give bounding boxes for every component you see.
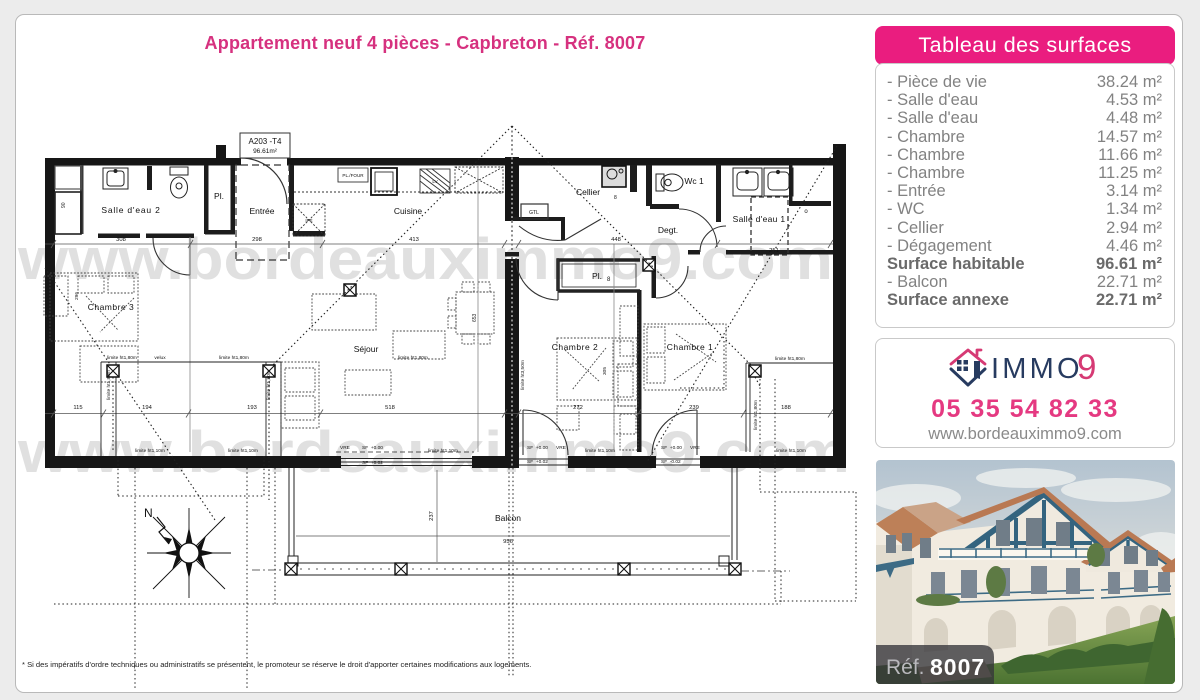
svg-text:308: 308 <box>116 237 126 243</box>
svg-text:limite ht1,10m: limite ht1,10m <box>428 448 458 454</box>
svg-text:Salle d'eau 2: Salle d'eau 2 <box>101 205 160 215</box>
svg-text:IFE: IFE <box>305 218 312 223</box>
svg-text:Cuisine: Cuisine <box>394 206 423 216</box>
svg-text:SF +0.00: SF +0.00 <box>527 445 548 451</box>
svg-text:SF +0.00: SF +0.00 <box>362 445 383 451</box>
svg-text:VRE: VRE <box>556 445 566 451</box>
svg-text:limite ht1,80m: limite ht1,80m <box>775 356 805 362</box>
svg-text:Chambre 1: Chambre 1 <box>667 342 714 352</box>
svg-text:188: 188 <box>781 405 791 411</box>
svg-text:PL./FOUR: PL./FOUR <box>342 173 364 178</box>
svg-text:A203 -T4: A203 -T4 <box>249 137 282 146</box>
svg-text:limite ht1,80m: limite ht1,80m <box>107 355 137 361</box>
svg-text:956: 956 <box>503 539 513 545</box>
svg-text:limite ht2,35m: limite ht2,35m <box>48 365 54 395</box>
svg-text:Entrée: Entrée <box>249 206 274 216</box>
svg-text:limite ht1,10m: limite ht1,10m <box>776 448 806 454</box>
svg-text:305: 305 <box>602 367 608 375</box>
svg-text:Séjour: Séjour <box>354 344 379 354</box>
svg-text:limite ht1,80m: limite ht1,80m <box>266 370 272 400</box>
svg-text:653: 653 <box>472 313 478 322</box>
svg-text:96.61m²: 96.61m² <box>253 148 278 155</box>
svg-text:limite ht3,50m: limite ht3,50m <box>520 360 526 390</box>
svg-text:SF +0.00: SF +0.00 <box>661 445 682 451</box>
svg-text:VRE: VRE <box>690 445 700 451</box>
svg-text:Pl.: Pl. <box>214 191 224 201</box>
svg-text:8007: 8007 <box>930 654 985 680</box>
svg-text:IMMO: IMMO <box>991 353 1083 385</box>
svg-text:limite ht1,10m: limite ht1,10m <box>585 448 615 454</box>
svg-text:N: N <box>144 506 153 520</box>
svg-text:Wc 1: Wc 1 <box>684 176 704 186</box>
svg-text:velux: velux <box>154 355 166 361</box>
svg-text:518: 518 <box>385 405 395 411</box>
svg-text:Salle d'eau 1: Salle d'eau 1 <box>733 214 786 224</box>
svg-text:272: 272 <box>573 405 583 411</box>
svg-text:SF -0.02: SF -0.02 <box>661 459 681 465</box>
svg-text:194: 194 <box>142 405 152 411</box>
svg-text:o: o <box>804 209 808 215</box>
svg-text:limite ht1,80m: limite ht1,80m <box>398 355 428 361</box>
svg-text:Chambre 2: Chambre 2 <box>552 342 599 352</box>
svg-text:Balcon: Balcon <box>495 513 521 523</box>
svg-text:8: 8 <box>614 195 617 201</box>
svg-text:limite ht1,80m: limite ht1,80m <box>753 400 759 430</box>
svg-text:limite ht1,10m: limite ht1,10m <box>135 448 165 454</box>
svg-text:115: 115 <box>73 405 82 411</box>
svg-text:limite ht1,10m: limite ht1,10m <box>228 448 258 454</box>
svg-text:Chambre 3: Chambre 3 <box>88 302 135 312</box>
svg-text:296: 296 <box>74 292 80 300</box>
svg-text:Cellier: Cellier <box>576 187 600 197</box>
svg-text:GTL: GTL <box>529 210 539 216</box>
svg-text:Degt.: Degt. <box>658 225 678 235</box>
svg-text:SF +0.02: SF +0.02 <box>362 460 383 466</box>
svg-text:9: 9 <box>1077 348 1096 387</box>
svg-text:Pl.: Pl. <box>592 271 602 281</box>
svg-text:limite ht1,80m: limite ht1,80m <box>219 355 249 361</box>
svg-text:239: 239 <box>689 405 699 411</box>
svg-text:SF +0.02: SF +0.02 <box>527 459 548 465</box>
svg-text:limite ht1,80m: limite ht1,80m <box>106 370 112 400</box>
svg-text:193: 193 <box>247 405 257 411</box>
svg-text:237: 237 <box>429 511 435 521</box>
svg-text:Réf.: Réf. <box>886 656 925 679</box>
svg-text:90: 90 <box>61 202 67 208</box>
svg-text:VRE: VRE <box>340 445 350 451</box>
svg-text:448: 448 <box>611 237 621 243</box>
svg-text:413: 413 <box>409 237 419 243</box>
svg-text:298: 298 <box>252 237 262 243</box>
